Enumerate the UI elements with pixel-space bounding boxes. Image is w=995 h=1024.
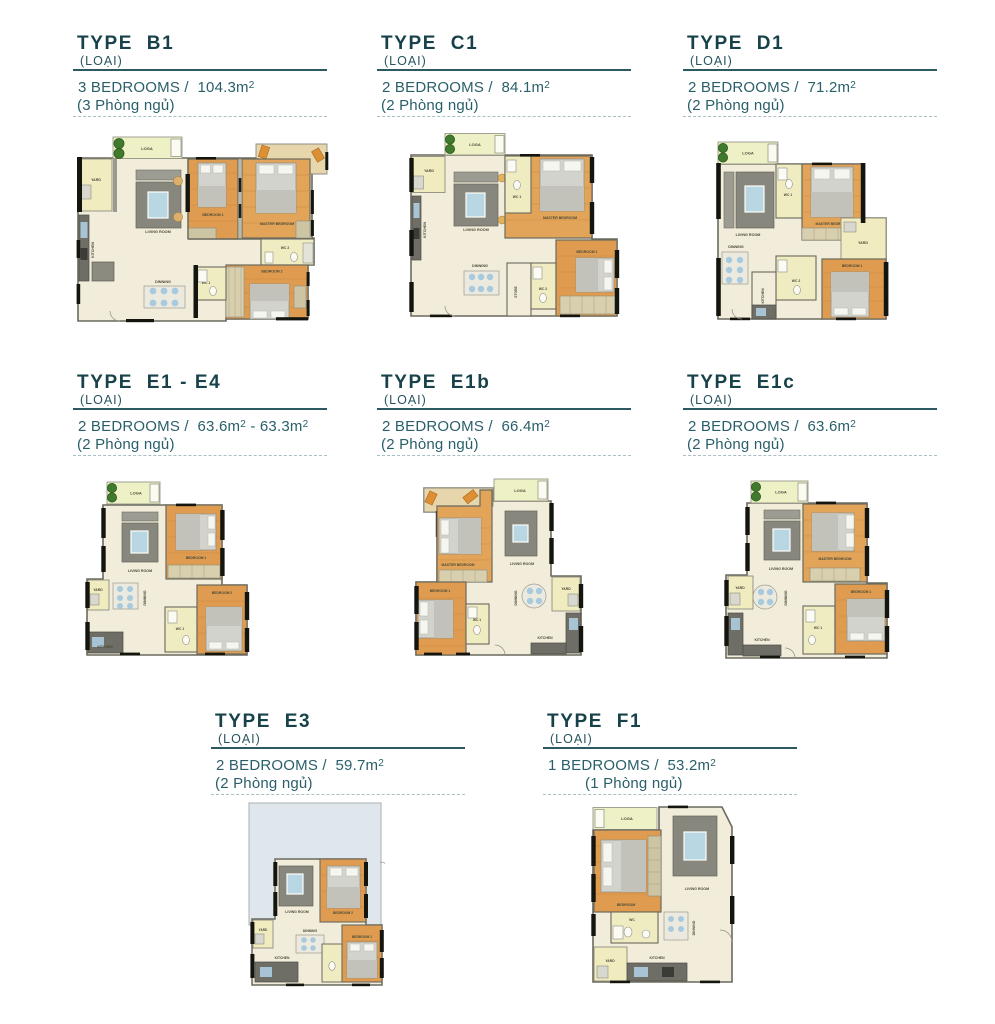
svg-text:DINNING: DINNING xyxy=(303,929,318,933)
svg-text:LIVING ROOM: LIVING ROOM xyxy=(736,233,761,237)
svg-text:LOGA: LOGA xyxy=(621,816,633,821)
svg-text:BEDROOM 2: BEDROOM 2 xyxy=(212,591,233,595)
svg-text:MASTER BEDROOM: MASTER BEDROOM xyxy=(442,563,475,567)
svg-text:BEDROOM 1: BEDROOM 1 xyxy=(186,556,207,560)
svg-text:MASTER BEDROOM: MASTER BEDROOM xyxy=(543,216,577,220)
svg-text:LIVING ROOM: LIVING ROOM xyxy=(685,887,709,891)
svg-text:DINNING: DINNING xyxy=(143,590,147,605)
svg-text:LIVING ROOM: LIVING ROOM xyxy=(463,228,489,232)
svg-text:DINNING: DINNING xyxy=(472,264,488,268)
svg-text:YARD: YARD xyxy=(605,959,615,963)
svg-text:YARD: YARD xyxy=(735,586,745,590)
svg-text:LOGA: LOGA xyxy=(742,151,754,156)
svg-text:WC 2: WC 2 xyxy=(792,279,801,283)
svg-text:LOGA: LOGA xyxy=(469,142,481,147)
svg-text:BEDROOM 1: BEDROOM 1 xyxy=(851,590,872,594)
svg-text:LOGA: LOGA xyxy=(141,146,153,151)
svg-text:YARD: YARD xyxy=(561,587,571,591)
svg-text:BEDROOM: BEDROOM xyxy=(617,903,635,907)
svg-text:BEDROOM 2: BEDROOM 2 xyxy=(261,270,282,274)
svg-text:YARD: YARD xyxy=(858,241,868,245)
svg-text:WC 2: WC 2 xyxy=(281,246,290,250)
svg-text:LIVING ROOM: LIVING ROOM xyxy=(128,569,152,573)
svg-text:BEDROOM 1: BEDROOM 1 xyxy=(576,250,597,254)
svg-text:YARD: YARD xyxy=(91,178,101,182)
svg-text:WC 1: WC 1 xyxy=(473,618,481,622)
svg-text:LIVING ROOM: LIVING ROOM xyxy=(145,230,171,234)
svg-text:KITCHEN: KITCHEN xyxy=(649,956,665,960)
svg-text:KITCHEN: KITCHEN xyxy=(754,638,770,642)
svg-text:DINNING: DINNING xyxy=(692,920,696,935)
svg-text:STORE: STORE xyxy=(514,285,518,297)
svg-text:KITCHEN: KITCHEN xyxy=(91,242,95,258)
svg-text:YARD: YARD xyxy=(424,169,434,173)
svg-text:KITCHEN: KITCHEN xyxy=(97,645,113,649)
svg-text:KITCHEN: KITCHEN xyxy=(423,222,427,238)
svg-text:DINNING: DINNING xyxy=(784,590,788,605)
svg-text:LIVING ROOM: LIVING ROOM xyxy=(285,910,309,914)
svg-text:WC 1: WC 1 xyxy=(176,627,185,631)
svg-text:LOGA: LOGA xyxy=(130,491,142,496)
svg-text:BEDROOM 1: BEDROOM 1 xyxy=(352,935,372,939)
svg-text:MASTER BEDROOM: MASTER BEDROOM xyxy=(260,222,294,226)
svg-text:LOGA: LOGA xyxy=(514,488,526,493)
svg-text:WC 1: WC 1 xyxy=(784,193,793,197)
svg-text:DINNING: DINNING xyxy=(155,280,171,284)
svg-text:KITCHEN: KITCHEN xyxy=(761,288,765,304)
svg-text:KITCHEN: KITCHEN xyxy=(537,636,553,640)
svg-text:DINNING: DINNING xyxy=(728,245,744,249)
svg-text:MASTER BEDROOM: MASTER BEDROOM xyxy=(819,557,852,561)
svg-text:YARD: YARD xyxy=(259,928,268,932)
svg-text:LOGA: LOGA xyxy=(775,490,787,495)
svg-text:WC: WC xyxy=(629,918,635,922)
svg-text:BEDROOM 2: BEDROOM 2 xyxy=(333,911,353,915)
svg-text:WC 1: WC 1 xyxy=(513,195,522,199)
svg-text:KITCHEN: KITCHEN xyxy=(275,956,290,960)
svg-text:DINNING: DINNING xyxy=(514,590,518,605)
svg-text:WC 2: WC 2 xyxy=(539,287,548,291)
svg-text:LIVING ROOM: LIVING ROOM xyxy=(510,562,534,566)
svg-text:WC 1: WC 1 xyxy=(814,626,823,630)
svg-text:BEDROOM 1: BEDROOM 1 xyxy=(842,264,863,268)
svg-text:BEDROOM 1: BEDROOM 1 xyxy=(202,213,223,217)
svg-text:YARD: YARD xyxy=(93,588,103,592)
svg-text:BEDROOM 1: BEDROOM 1 xyxy=(430,589,451,593)
svg-text:LIVING ROOM: LIVING ROOM xyxy=(769,567,793,571)
